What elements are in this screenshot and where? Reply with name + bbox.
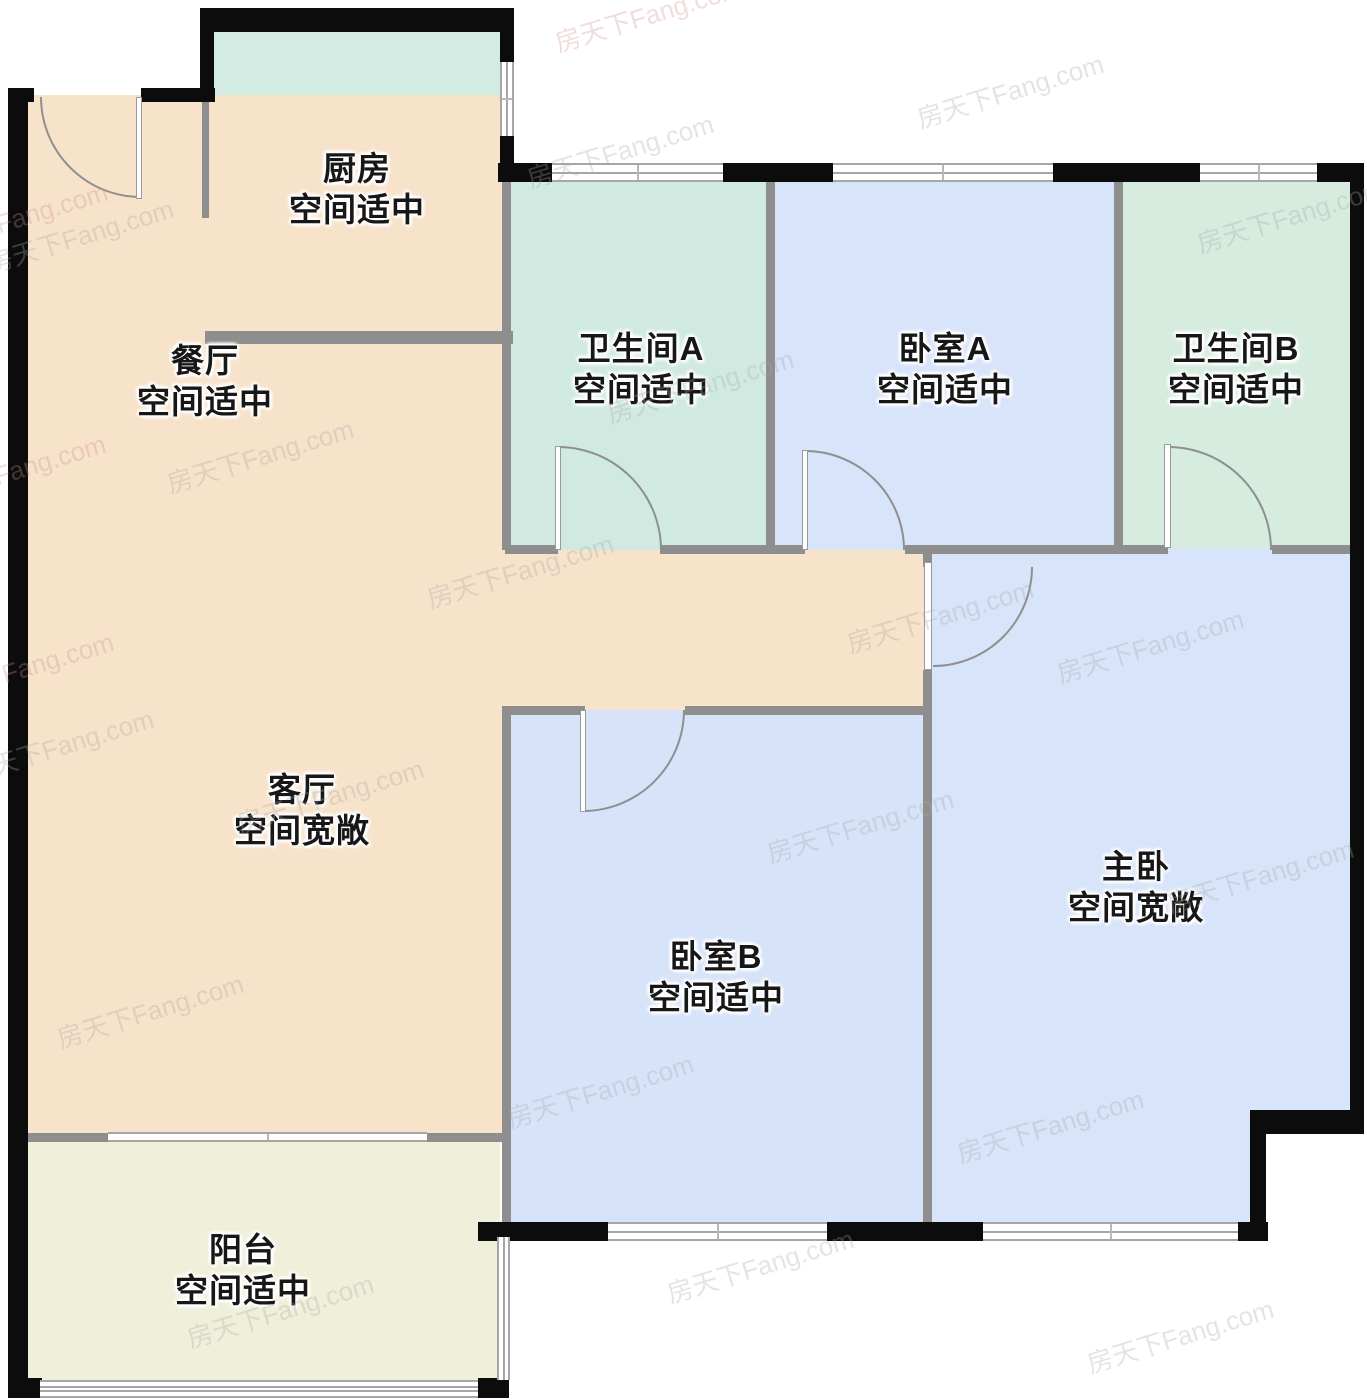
- door-bed-b-leaf: [580, 710, 586, 812]
- window-bath-b-top-divider: [1258, 165, 1260, 180]
- outer-wall-18: [478, 1378, 509, 1398]
- room-note-bed-a: 空间适中: [877, 369, 1013, 410]
- room-name-bed-a: 卧室A: [877, 328, 1013, 369]
- outer-wall-16: [1238, 1222, 1268, 1241]
- room-name-bath-b: 卫生间B: [1168, 328, 1304, 369]
- window-bath-a-top-divider: [637, 165, 639, 180]
- room-label-kitchen: 厨房空间适中: [289, 148, 425, 230]
- room-label-master: 主卧空间宽敞: [1068, 846, 1204, 928]
- outer-wall-7: [498, 163, 554, 182]
- window-bath-b-top: [1200, 163, 1317, 182]
- room-name-bed-b: 卧室B: [648, 936, 784, 977]
- window-bath-a-top: [552, 163, 723, 182]
- room-name-living: 客厅: [234, 769, 370, 810]
- dining-living-floor: [25, 95, 509, 1141]
- window-master-bottom-divider: [1110, 1224, 1112, 1239]
- room-label-bed-b: 卧室B空间适中: [648, 936, 784, 1018]
- balcony-slider: [108, 1132, 427, 1142]
- room-note-master: 空间宽敞: [1068, 887, 1204, 928]
- partition-wall-15: [427, 1133, 507, 1142]
- room-label-bath-a: 卫生间A空间适中: [573, 328, 709, 410]
- room-name-kitchen: 厨房: [289, 148, 425, 189]
- partition-wall-8: [923, 670, 932, 1224]
- outer-wall-1: [8, 88, 34, 102]
- window-master-bottom: [983, 1222, 1238, 1241]
- watermark-18: 房天下Fang.com: [1082, 1289, 1278, 1381]
- partition-wall-2: [1114, 178, 1123, 550]
- room-label-bed-a: 卧室A空间适中: [877, 328, 1013, 410]
- door-entrance-leaf: [136, 97, 142, 199]
- balcony-rail-bottom-line-0: [40, 1386, 478, 1388]
- window-bed-a-top: [833, 163, 1053, 182]
- room-label-dining: 餐厅空间适中: [137, 340, 273, 422]
- window-kitchen-right-divider: [502, 98, 512, 100]
- partition-wall-14: [28, 1133, 110, 1142]
- outer-wall-12: [1250, 1110, 1364, 1134]
- window-bed-b-bottom: [608, 1222, 827, 1241]
- balcony-slider-divider: [267, 1134, 269, 1140]
- window-bed-a-top-divider: [942, 165, 944, 180]
- window-kitchen-right: [500, 62, 514, 136]
- partition-wall-4: [660, 545, 805, 554]
- floorplan-canvas: 厨房空间适中餐厅空间适中卫生间A空间适中卧室A空间适中卫生间B空间适中客厅空间宽…: [0, 0, 1367, 1400]
- room-note-balcony: 空间适中: [175, 1270, 311, 1311]
- partition-wall-3: [505, 545, 558, 554]
- door-bed-a-leaf: [802, 450, 808, 550]
- room-note-bath-a: 空间适中: [573, 369, 709, 410]
- outer-wall-17: [8, 1378, 42, 1398]
- room-label-bath-b: 卫生间B空间适中: [1168, 328, 1304, 410]
- room-name-balcony: 阳台: [175, 1229, 311, 1270]
- door-bath-a-leaf: [555, 446, 561, 550]
- room-label-living: 客厅空间宽敞: [234, 769, 370, 851]
- partition-wall-6: [1272, 545, 1352, 554]
- door-bath-b-leaf: [1164, 444, 1171, 548]
- balcony-rail-right-line-0: [503, 1237, 505, 1380]
- window-bed-b-bottom-divider: [717, 1224, 719, 1239]
- partition-wall-13: [202, 100, 209, 218]
- room-note-living: 空间宽敞: [234, 810, 370, 851]
- outer-wall-9: [1053, 163, 1200, 182]
- room-note-dining: 空间适中: [137, 381, 273, 422]
- partition-wall-9: [502, 706, 511, 1224]
- hall-floor: [505, 548, 925, 710]
- balcony-rail-bottom: [40, 1380, 478, 1398]
- watermark-2: 房天下Fang.com: [912, 44, 1108, 136]
- outer-wall-15: [827, 1222, 984, 1241]
- outer-wall-0: [8, 88, 28, 1398]
- balcony-rail-bottom-line-1: [40, 1390, 478, 1392]
- notch-cutout: [1266, 1133, 1367, 1245]
- outer-wall-11: [1350, 163, 1364, 1133]
- room-name-master: 主卧: [1068, 846, 1204, 887]
- room-note-bed-b: 空间适中: [648, 977, 784, 1018]
- room-label-balcony: 阳台空间适中: [175, 1229, 311, 1311]
- room-name-dining: 餐厅: [137, 340, 273, 381]
- watermark-accent-0: 房天下Fang.com: [550, 0, 746, 60]
- outer-wall-5: [500, 8, 514, 64]
- partition-wall-11: [685, 706, 925, 715]
- partition-wall-1: [766, 178, 775, 550]
- balcony-rail-right: [497, 1237, 510, 1380]
- door-master-leaf: [924, 562, 932, 670]
- room-note-kitchen: 空间适中: [289, 189, 425, 230]
- outer-wall-4: [200, 8, 513, 32]
- outer-wall-8: [723, 163, 833, 182]
- partition-wall-5: [905, 545, 1168, 554]
- partition-wall-0: [502, 178, 511, 550]
- room-note-bath-b: 空间适中: [1168, 369, 1304, 410]
- partition-wall-10: [505, 706, 585, 715]
- outer-wall-13: [1250, 1110, 1266, 1237]
- room-name-bath-a: 卫生间A: [573, 328, 709, 369]
